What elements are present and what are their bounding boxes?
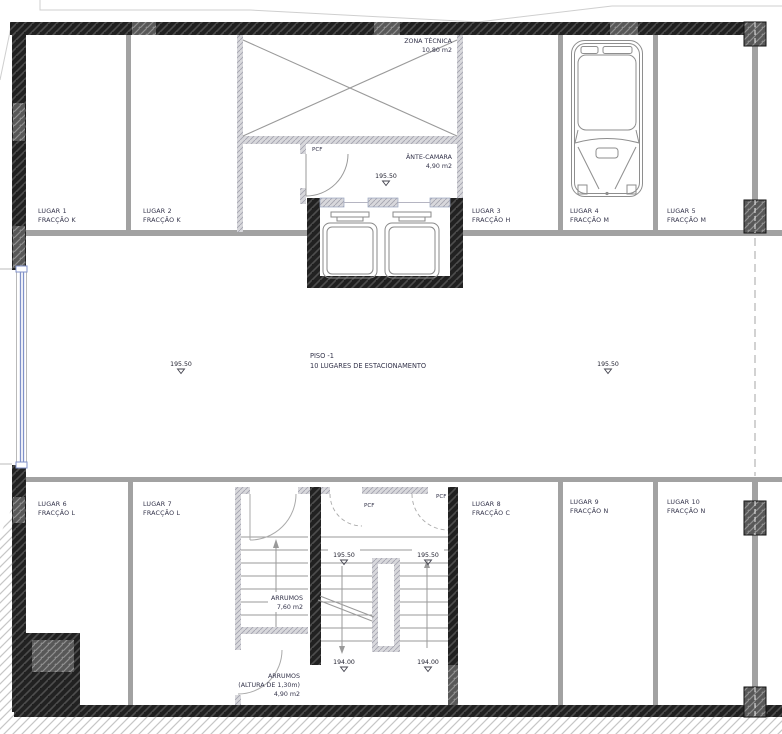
parking-space-3: LUGAR 3 FRACÇÃO H bbox=[472, 208, 510, 224]
elevator-shaft bbox=[307, 198, 463, 288]
staircase-block: ARRUMOS 7,60 m2 ARRUMOS (ALTURA DE 1,30m… bbox=[235, 487, 458, 712]
svg-text:FRACÇÃO C: FRACÇÃO C bbox=[472, 508, 510, 517]
level-marker-stair-bl: 194.00 bbox=[328, 655, 360, 672]
svg-text:195.50: 195.50 bbox=[375, 173, 397, 180]
level-marker-stair-br: 194.00 bbox=[412, 655, 444, 672]
storage-stair-door-icon bbox=[250, 494, 296, 540]
floor-plan: ZONA TÉCNICA 10,80 m2 PCF ÂNTE-CAMARA 4,… bbox=[0, 0, 782, 734]
pcf-label-stair-right: PCF bbox=[436, 494, 447, 500]
svg-text:194.00: 194.00 bbox=[333, 659, 355, 666]
parking-space-5: LUGAR 5 FRACÇÃO M bbox=[667, 208, 706, 224]
level-marker-ante: 195.50 bbox=[375, 173, 397, 186]
level-marker-aisle-right: 195.50 bbox=[597, 361, 619, 374]
garage-gate bbox=[0, 266, 27, 468]
stair-arrow-down bbox=[339, 646, 345, 654]
floor-label: PISO -1 bbox=[310, 352, 334, 360]
parking-space-10: LUGAR 10 FRACÇÃO N bbox=[667, 499, 705, 515]
level-marker-aisle-left: 195.50 bbox=[170, 361, 192, 374]
stair-door-left-icon bbox=[330, 494, 362, 526]
svg-text:LUGAR 1: LUGAR 1 bbox=[38, 208, 67, 215]
arrumos-lower-note: (ALTURA DE 1,30m) bbox=[238, 682, 300, 689]
svg-text:195.50: 195.50 bbox=[333, 552, 355, 559]
svg-text:LUGAR 9: LUGAR 9 bbox=[570, 499, 599, 506]
arrumos-upper-name: ARRUMOS bbox=[271, 595, 303, 602]
svg-text:FRACÇÃO M: FRACÇÃO M bbox=[667, 215, 706, 224]
site-boundary-lines bbox=[0, 0, 782, 80]
car-icon bbox=[572, 41, 643, 197]
svg-text:FRACÇÃO L: FRACÇÃO L bbox=[38, 508, 75, 517]
level-marker-stair-tl: 195.50 bbox=[328, 548, 360, 565]
svg-text:FRACÇÃO L: FRACÇÃO L bbox=[143, 508, 180, 517]
pcf-label-ante: PCF bbox=[312, 147, 323, 153]
floor-sublabel: 10 LUGARES DE ESTACIONAMENTO bbox=[310, 362, 426, 370]
svg-text:FRACÇÃO N: FRACÇÃO N bbox=[570, 506, 608, 515]
svg-text:LUGAR 3: LUGAR 3 bbox=[472, 208, 501, 215]
parking-space-1: LUGAR 1 FRACÇÃO K bbox=[38, 208, 76, 224]
svg-text:LUGAR 10: LUGAR 10 bbox=[667, 499, 700, 506]
ante-camara-area: 4,90 m2 bbox=[426, 163, 452, 170]
parking-space-8: LUGAR 8 FRACÇÃO C bbox=[472, 501, 510, 517]
svg-text:LUGAR 7: LUGAR 7 bbox=[143, 501, 172, 508]
svg-text:FRACÇÃO M: FRACÇÃO M bbox=[570, 215, 609, 224]
zona-tecnica-name: ZONA TÉCNICA bbox=[404, 36, 452, 45]
svg-text:LUGAR 2: LUGAR 2 bbox=[143, 208, 172, 215]
ante-camara-door-icon bbox=[306, 154, 348, 196]
parking-space-6: LUGAR 6 FRACÇÃO L bbox=[38, 501, 75, 517]
pcf-label-stair-left: PCF bbox=[364, 503, 375, 509]
svg-text:LUGAR 8: LUGAR 8 bbox=[472, 501, 501, 508]
svg-text:FRACÇÃO H: FRACÇÃO H bbox=[472, 215, 510, 224]
parking-space-2: LUGAR 2 FRACÇÃO K bbox=[143, 208, 181, 224]
svg-text:195.50: 195.50 bbox=[417, 552, 439, 559]
zona-tecnica-area: 10,80 m2 bbox=[422, 47, 452, 54]
svg-text:LUGAR 5: LUGAR 5 bbox=[667, 208, 696, 215]
storage-stairs-treads bbox=[241, 537, 308, 627]
arrumos-lower-name: ARRUMOS bbox=[268, 673, 300, 680]
wall-bottom bbox=[14, 705, 782, 717]
svg-text:FRACÇÃO K: FRACÇÃO K bbox=[38, 215, 76, 224]
ante-camara: PCF ÂNTE-CAMARA 4,90 m2 195.50 bbox=[300, 144, 453, 204]
stair-break-line bbox=[318, 596, 374, 621]
zona-tecnica-x-icon bbox=[243, 40, 457, 136]
drive-aisle-label: PISO -1 10 LUGARES DE ESTACIONAMENTO bbox=[310, 352, 426, 370]
arrumos-upper-area: 7,60 m2 bbox=[277, 604, 303, 611]
parking-space-4: LUGAR 4 FRACÇÃO M bbox=[570, 208, 609, 224]
floor-plan-svg: ZONA TÉCNICA 10,80 m2 PCF ÂNTE-CAMARA 4,… bbox=[0, 0, 782, 734]
storage-stairs-arrow bbox=[273, 539, 279, 548]
parking-space-9: LUGAR 9 FRACÇÃO N bbox=[570, 499, 608, 515]
parking-space-7: LUGAR 7 FRACÇÃO L bbox=[143, 501, 180, 517]
svg-text:FRACÇÃO K: FRACÇÃO K bbox=[143, 215, 181, 224]
ante-camara-name: ÂNTE-CAMARA bbox=[406, 152, 453, 161]
stair-core bbox=[372, 558, 400, 652]
level-marker-stair-tr: 195.50 bbox=[412, 548, 444, 565]
svg-text:195.50: 195.50 bbox=[597, 361, 619, 368]
arrumos-lower-area: 4,90 m2 bbox=[274, 691, 300, 698]
svg-text:LUGAR 4: LUGAR 4 bbox=[570, 208, 599, 215]
svg-text:195.50: 195.50 bbox=[170, 361, 192, 368]
svg-text:LUGAR 6: LUGAR 6 bbox=[38, 501, 67, 508]
svg-text:194.00: 194.00 bbox=[417, 659, 439, 666]
svg-text:FRACÇÃO N: FRACÇÃO N bbox=[667, 506, 705, 515]
